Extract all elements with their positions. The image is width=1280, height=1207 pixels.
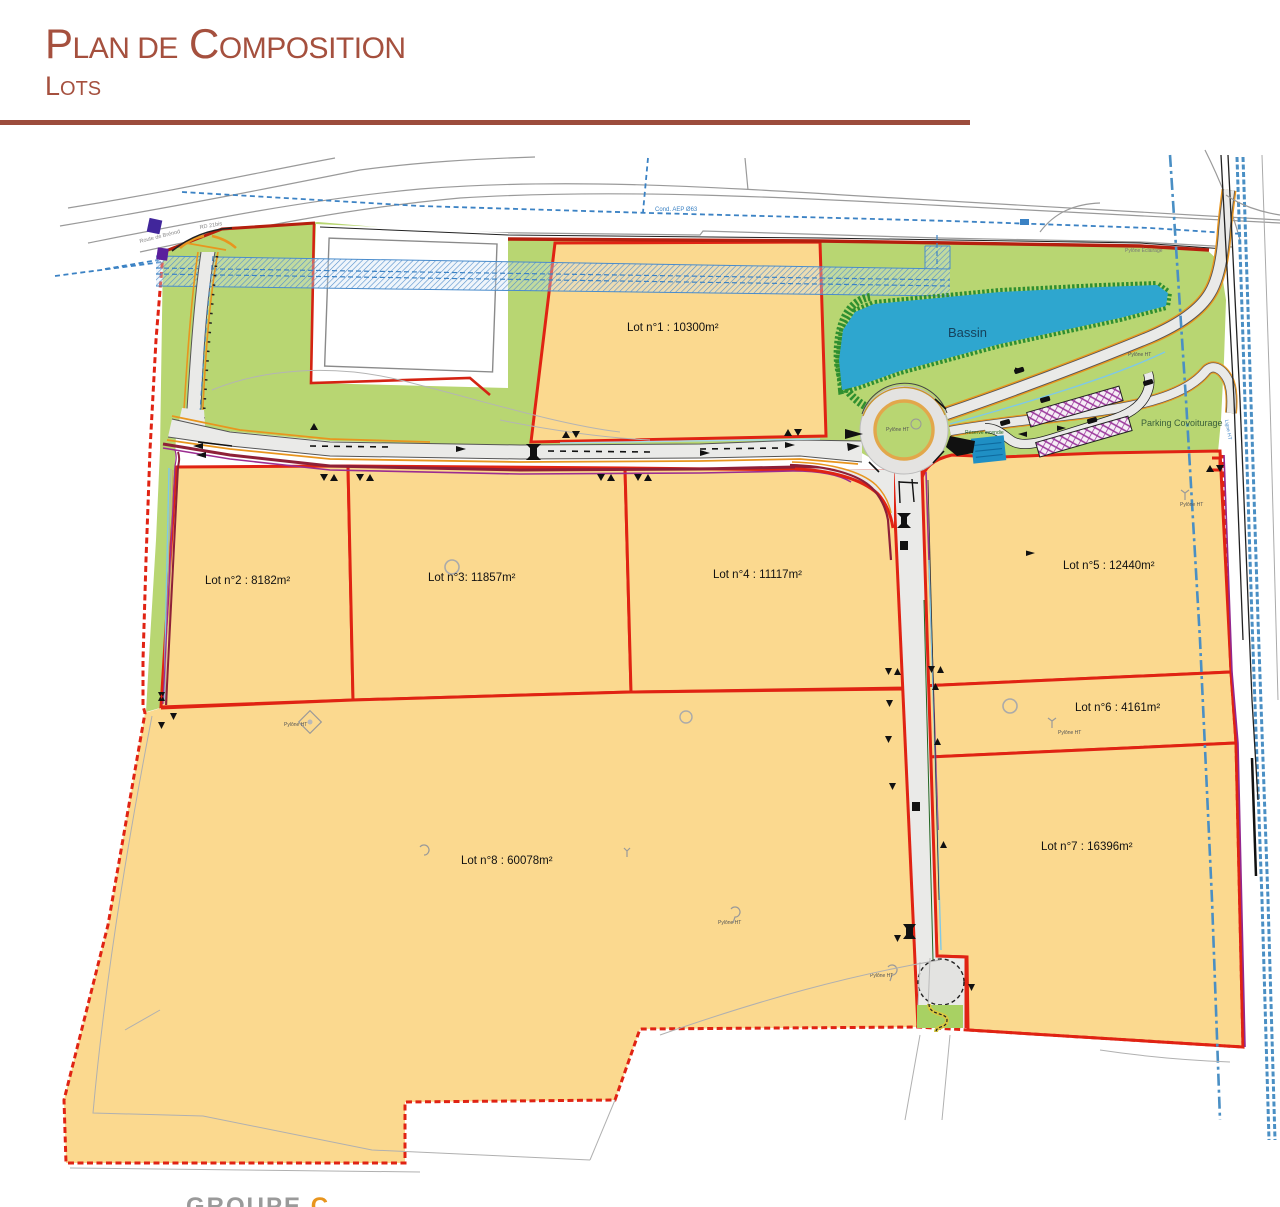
- svg-text:Pylône HT: Pylône HT: [1058, 730, 1081, 736]
- svg-text:GROUPE C: GROUPE C: [186, 1193, 330, 1207]
- svg-text:Pylône HT: Pylône HT: [284, 722, 307, 728]
- svg-text:Pylône HT: Pylône HT: [718, 920, 741, 926]
- svg-text:Lot n°6 : 4161m²: Lot n°6 : 4161m²: [1075, 702, 1160, 714]
- svg-text:Lot n°7 : 16396m²: Lot n°7 : 16396m²: [1041, 841, 1133, 853]
- svg-text:Bassin: Bassin: [948, 325, 987, 340]
- svg-text:Lot n°4 : 11117m²: Lot n°4 : 11117m²: [713, 569, 802, 581]
- svg-text:Cond. AEP Ø63: Cond. AEP Ø63: [655, 207, 698, 213]
- svg-text:Lot n°1 : 10300m²: Lot n°1 : 10300m²: [627, 322, 719, 334]
- svg-text:Pylône HT: Pylône HT: [870, 973, 893, 979]
- svg-text:Pylône Éclairage: Pylône Éclairage: [1125, 247, 1163, 254]
- svg-text:Lot n°2 : 8182m²: Lot n°2 : 8182m²: [205, 575, 290, 587]
- svg-text:Réserve incendie: Réserve incendie: [965, 430, 1004, 436]
- svg-text:Pylône HT: Pylône HT: [886, 427, 909, 433]
- svg-text:Pylône HT: Pylône HT: [1128, 352, 1151, 358]
- svg-text:Pylône HT: Pylône HT: [1180, 502, 1203, 508]
- svg-text:Lot n°8 : 60078m²: Lot n°8 : 60078m²: [461, 855, 553, 867]
- svg-text:Parking Covoiturage: Parking Covoiturage: [1141, 418, 1223, 428]
- svg-text:Lot n°3: 11857m²: Lot n°3: 11857m²: [428, 572, 516, 584]
- svg-text:Lot n°5 : 12440m²: Lot n°5 : 12440m²: [1063, 560, 1155, 572]
